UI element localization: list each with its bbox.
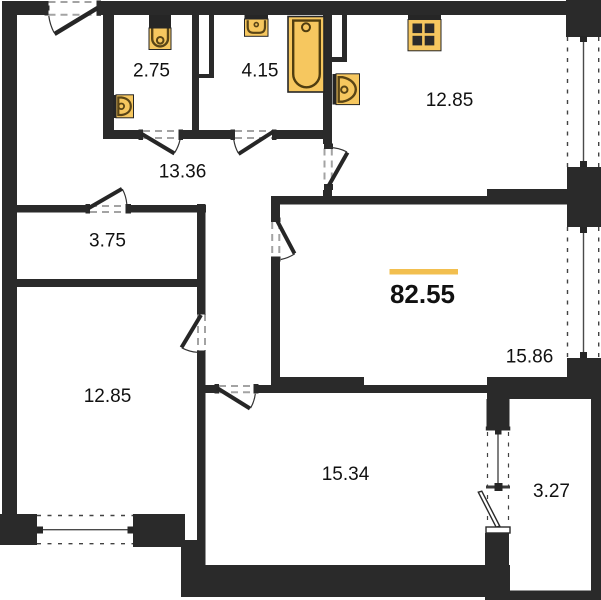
svg-text:2.75: 2.75 (133, 61, 170, 82)
svg-text:15.34: 15.34 (322, 464, 370, 485)
svg-text:12.85: 12.85 (84, 386, 132, 407)
svg-text:3.27: 3.27 (533, 481, 570, 502)
svg-text:82.55: 82.55 (390, 279, 455, 309)
svg-text:4.15: 4.15 (242, 61, 279, 82)
svg-text:3.75: 3.75 (89, 231, 126, 252)
svg-text:15.86: 15.86 (506, 347, 554, 368)
svg-text:13.36: 13.36 (159, 162, 207, 183)
svg-text:12.85: 12.85 (426, 90, 474, 111)
